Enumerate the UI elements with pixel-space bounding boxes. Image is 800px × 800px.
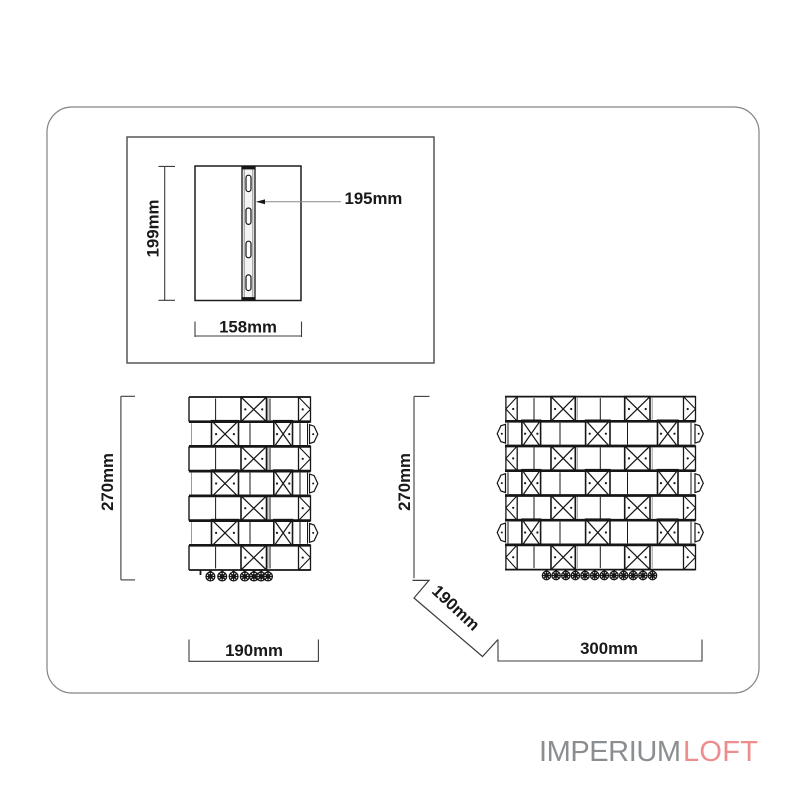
svg-text:190mm: 190mm [225, 641, 283, 660]
svg-text:IMPERIUM: IMPERIUM [539, 736, 681, 768]
svg-text:158mm: 158mm [219, 318, 277, 337]
svg-text:199mm: 199mm [144, 200, 163, 258]
svg-text:300mm: 300mm [580, 639, 638, 658]
svg-text:LOFT: LOFT [683, 736, 758, 768]
svg-text:270mm: 270mm [395, 453, 414, 511]
svg-text:270mm: 270mm [98, 453, 117, 511]
svg-text:195mm: 195mm [345, 189, 403, 208]
